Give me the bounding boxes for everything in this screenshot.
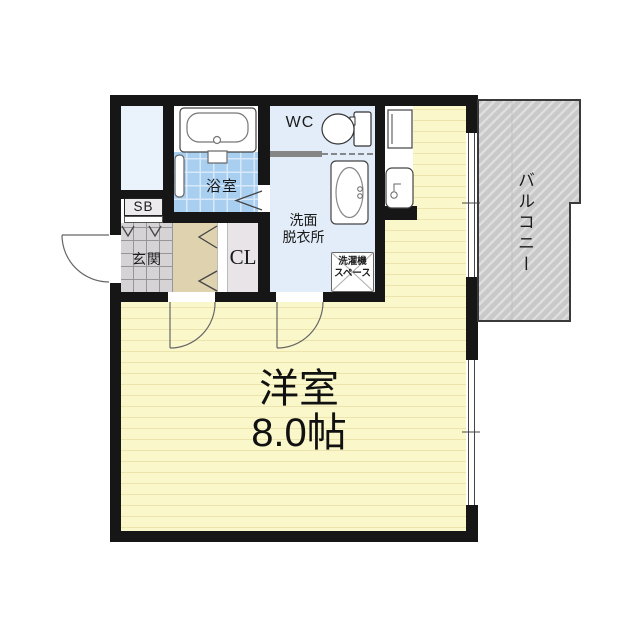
washroom-label: 洗面 脱衣所 [276, 212, 331, 246]
shoebox-door-chevron-icon [149, 226, 161, 236]
hall-door-swing [170, 302, 215, 348]
washroom-label-line1: 洗面 [276, 212, 331, 229]
main-room-size: 8.0帖 [189, 411, 409, 455]
sliding-door-wc [270, 151, 375, 157]
closet-label: CL [226, 245, 260, 270]
shoebox-door-chevron-icon [122, 226, 134, 236]
laundry-label-line2: スペース [331, 268, 374, 280]
vanity-sink [331, 161, 368, 224]
toilet [322, 112, 371, 146]
laundry-label: 洗濯機 スペース [331, 256, 374, 279]
toilet-label: WC [280, 114, 320, 132]
laundry-label-line1: 洗濯機 [331, 256, 374, 268]
shoe-box-label: SB [124, 199, 163, 214]
entrance-door-swing [62, 235, 109, 282]
main-room-label: 洋室 8.0帖 [189, 367, 409, 455]
washroom-door-swing [277, 302, 323, 348]
closet-folding-door-icon [199, 226, 217, 248]
washroom-label-line2: 脱衣所 [276, 229, 331, 246]
fixtures-overlay [0, 0, 640, 640]
kitchen-unit [386, 110, 413, 208]
entrance-label: 玄関 [121, 249, 173, 269]
closet-folding-door-icon [199, 271, 217, 291]
main-room-name: 洋室 [189, 367, 409, 411]
door-swings [62, 235, 323, 348]
balcony-label: バルコニー [512, 148, 537, 298]
floor-plan: WC 浴室 洗面 脱衣所 洗濯機 スペース SB 玄関 CL 洋室 8.0帖 バ… [0, 0, 640, 640]
bathroom-label: 浴室 [203, 175, 241, 196]
